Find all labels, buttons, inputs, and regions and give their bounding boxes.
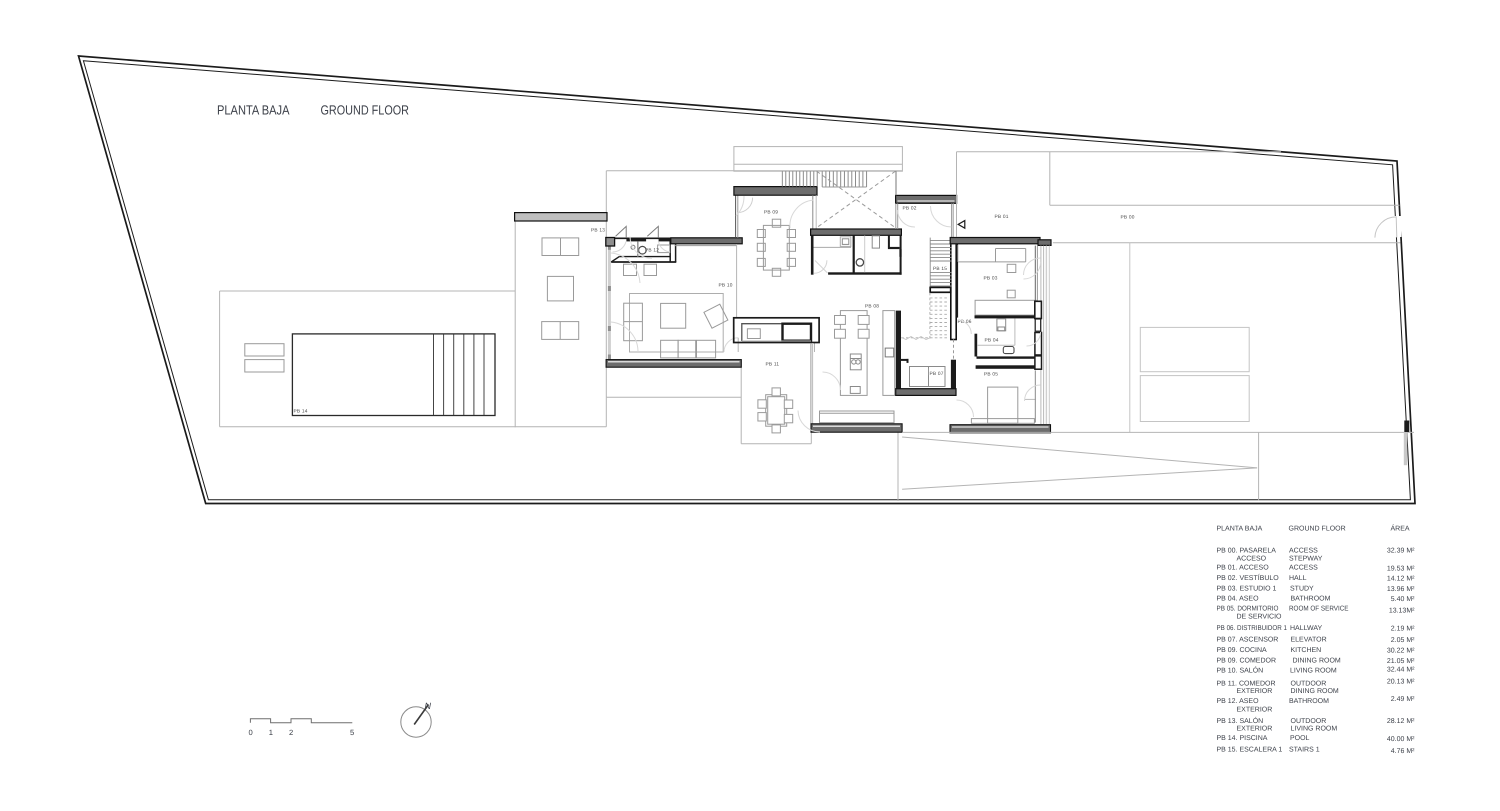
svg-text:BATHROOM: BATHROOM — [1291, 596, 1331, 603]
svg-text:PLANTA BAJA: PLANTA BAJA — [217, 103, 290, 118]
svg-text:PB 00. PASARELA: PB 00. PASARELA — [1217, 547, 1277, 554]
svg-text:ELEVATOR: ELEVATOR — [1291, 636, 1327, 643]
svg-text:40.00 M²: 40.00 M² — [1387, 736, 1415, 743]
svg-text:PB 10. SALÓN: PB 10. SALÓN — [1217, 666, 1264, 675]
svg-text:ACCESS: ACCESS — [1289, 547, 1318, 554]
svg-text:14.12 M²: 14.12 M² — [1387, 576, 1415, 583]
svg-text:PB 09. COMEDOR: PB 09. COMEDOR — [1217, 657, 1277, 664]
svg-text:EXTERIOR: EXTERIOR — [1237, 688, 1273, 695]
svg-text:32.39 M²: 32.39 M² — [1387, 547, 1415, 554]
svg-text:PB 00: PB 00 — [1121, 215, 1135, 221]
svg-text:PB 07. ASCENSOR: PB 07. ASCENSOR — [1217, 636, 1279, 643]
svg-text:ÁREA: ÁREA — [1391, 524, 1410, 533]
svg-text:STAIRS 1: STAIRS 1 — [1289, 747, 1320, 754]
svg-text:PB 03. ESTUDIO 1: PB 03. ESTUDIO 1 — [1217, 586, 1277, 593]
svg-text:KITCHEN: KITCHEN — [1291, 647, 1322, 654]
svg-text:21.05 M²: 21.05 M² — [1387, 658, 1415, 665]
svg-text:PB 04: PB 04 — [985, 338, 999, 344]
svg-text:PB 13: PB 13 — [591, 228, 605, 234]
svg-text:PB 04. ASEO: PB 04. ASEO — [1217, 596, 1260, 603]
svg-text:HALLWAY: HALLWAY — [1290, 625, 1322, 632]
svg-text:PB 03: PB 03 — [984, 276, 998, 282]
svg-text:EXTERIOR: EXTERIOR — [1237, 726, 1273, 733]
svg-text:GROUND FLOOR: GROUND FLOOR — [1289, 526, 1346, 533]
svg-text:PB 05: PB 05 — [984, 372, 998, 378]
svg-text:2.19 M²: 2.19 M² — [1391, 625, 1415, 632]
svg-text:30.22 M²: 30.22 M² — [1387, 647, 1415, 654]
svg-text:2.05 M²: 2.05 M² — [1391, 637, 1415, 644]
svg-text:LIVING ROOM: LIVING ROOM — [1290, 668, 1337, 675]
svg-text:PB 08: PB 08 — [865, 304, 879, 310]
svg-text:EXTERIOR: EXTERIOR — [1237, 707, 1273, 714]
svg-text:OUTDOOR: OUTDOOR — [1291, 718, 1327, 725]
svg-text:PB 15. ESCALERA 1: PB 15. ESCALERA 1 — [1217, 747, 1283, 754]
svg-text:PB 05. DORMITORIO: PB 05. DORMITORIO — [1217, 606, 1279, 613]
svg-text:STEPWAY: STEPWAY — [1289, 555, 1323, 562]
svg-text:BATHROOM: BATHROOM — [1289, 698, 1329, 705]
svg-text:PB 11. COMEDOR: PB 11. COMEDOR — [1217, 680, 1276, 687]
svg-text:LIVING ROOM: LIVING ROOM — [1291, 726, 1338, 733]
svg-text:PB 15: PB 15 — [933, 266, 947, 272]
svg-text:PB 09. COCINA: PB 09. COCINA — [1217, 647, 1268, 654]
svg-text:0: 0 — [249, 728, 253, 737]
svg-text:2.49 M²: 2.49 M² — [1391, 696, 1415, 703]
svg-text:13.96 M²: 13.96 M² — [1387, 586, 1415, 593]
svg-text:13.13M²: 13.13M² — [1389, 608, 1415, 615]
svg-text:ACCESO: ACCESO — [1237, 555, 1267, 562]
svg-text:DINING ROOM: DINING ROOM — [1291, 688, 1339, 695]
svg-text:PB 09: PB 09 — [764, 210, 778, 216]
svg-text:PB 12: PB 12 — [645, 248, 659, 254]
svg-text:28.12 M²: 28.12 M² — [1387, 718, 1415, 725]
svg-text:PB 06. DISTRIBUIDOR 1: PB 06. DISTRIBUIDOR 1 — [1217, 625, 1288, 632]
svg-text:ACCESS: ACCESS — [1289, 565, 1318, 572]
svg-text:2: 2 — [289, 728, 293, 737]
svg-text:PB 14. PISCINA: PB 14. PISCINA — [1217, 735, 1268, 742]
svg-text:HALL: HALL — [1289, 575, 1307, 582]
svg-text:ROOM OF SERVICE: ROOM OF SERVICE — [1289, 606, 1349, 613]
svg-text:DINING ROOM: DINING ROOM — [1293, 657, 1341, 664]
svg-text:PB 01: PB 01 — [995, 214, 1009, 220]
svg-text:5: 5 — [350, 728, 354, 737]
svg-text:32.44 M²: 32.44 M² — [1387, 666, 1415, 673]
svg-text:5.40 M²: 5.40 M² — [1391, 596, 1415, 603]
svg-text:GROUND FLOOR: GROUND FLOOR — [321, 103, 410, 118]
svg-text:PB 11: PB 11 — [766, 362, 780, 368]
svg-text:19.53 M²: 19.53 M² — [1387, 565, 1415, 572]
svg-text:DE SERVICIO: DE SERVICIO — [1237, 614, 1283, 621]
svg-text:PB 02: PB 02 — [903, 206, 917, 212]
svg-text:4.76 M²: 4.76 M² — [1391, 748, 1415, 755]
svg-text:STUDY: STUDY — [1290, 586, 1314, 593]
svg-text:PB 01. ACCESO: PB 01. ACCESO — [1217, 565, 1270, 572]
svg-text:OUTDOOR: OUTDOOR — [1291, 680, 1327, 687]
svg-text:PB 07: PB 07 — [930, 371, 944, 377]
svg-text:PLANTA BAJA: PLANTA BAJA — [1217, 526, 1263, 533]
svg-text:1: 1 — [269, 728, 273, 737]
svg-text:N: N — [425, 701, 432, 711]
svg-text:PB 14: PB 14 — [294, 409, 308, 415]
svg-text:PB 13. SALÓN: PB 13. SALÓN — [1217, 716, 1264, 725]
svg-text:POOL: POOL — [1290, 735, 1310, 742]
svg-text:PB 02. VESTÍBULO: PB 02. VESTÍBULO — [1217, 573, 1280, 582]
svg-text:PB 12. ASEO: PB 12. ASEO — [1217, 698, 1260, 705]
svg-text:20.13 M²: 20.13 M² — [1387, 678, 1415, 685]
svg-text:PB 10: PB 10 — [719, 283, 733, 289]
